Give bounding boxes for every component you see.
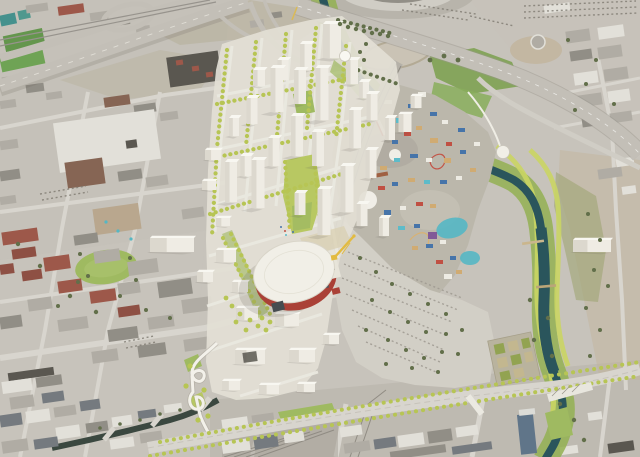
photo-haze-overlay — [0, 0, 640, 457]
aerial-rendering — [0, 0, 640, 457]
aerial-scene-canvas — [0, 0, 640, 457]
